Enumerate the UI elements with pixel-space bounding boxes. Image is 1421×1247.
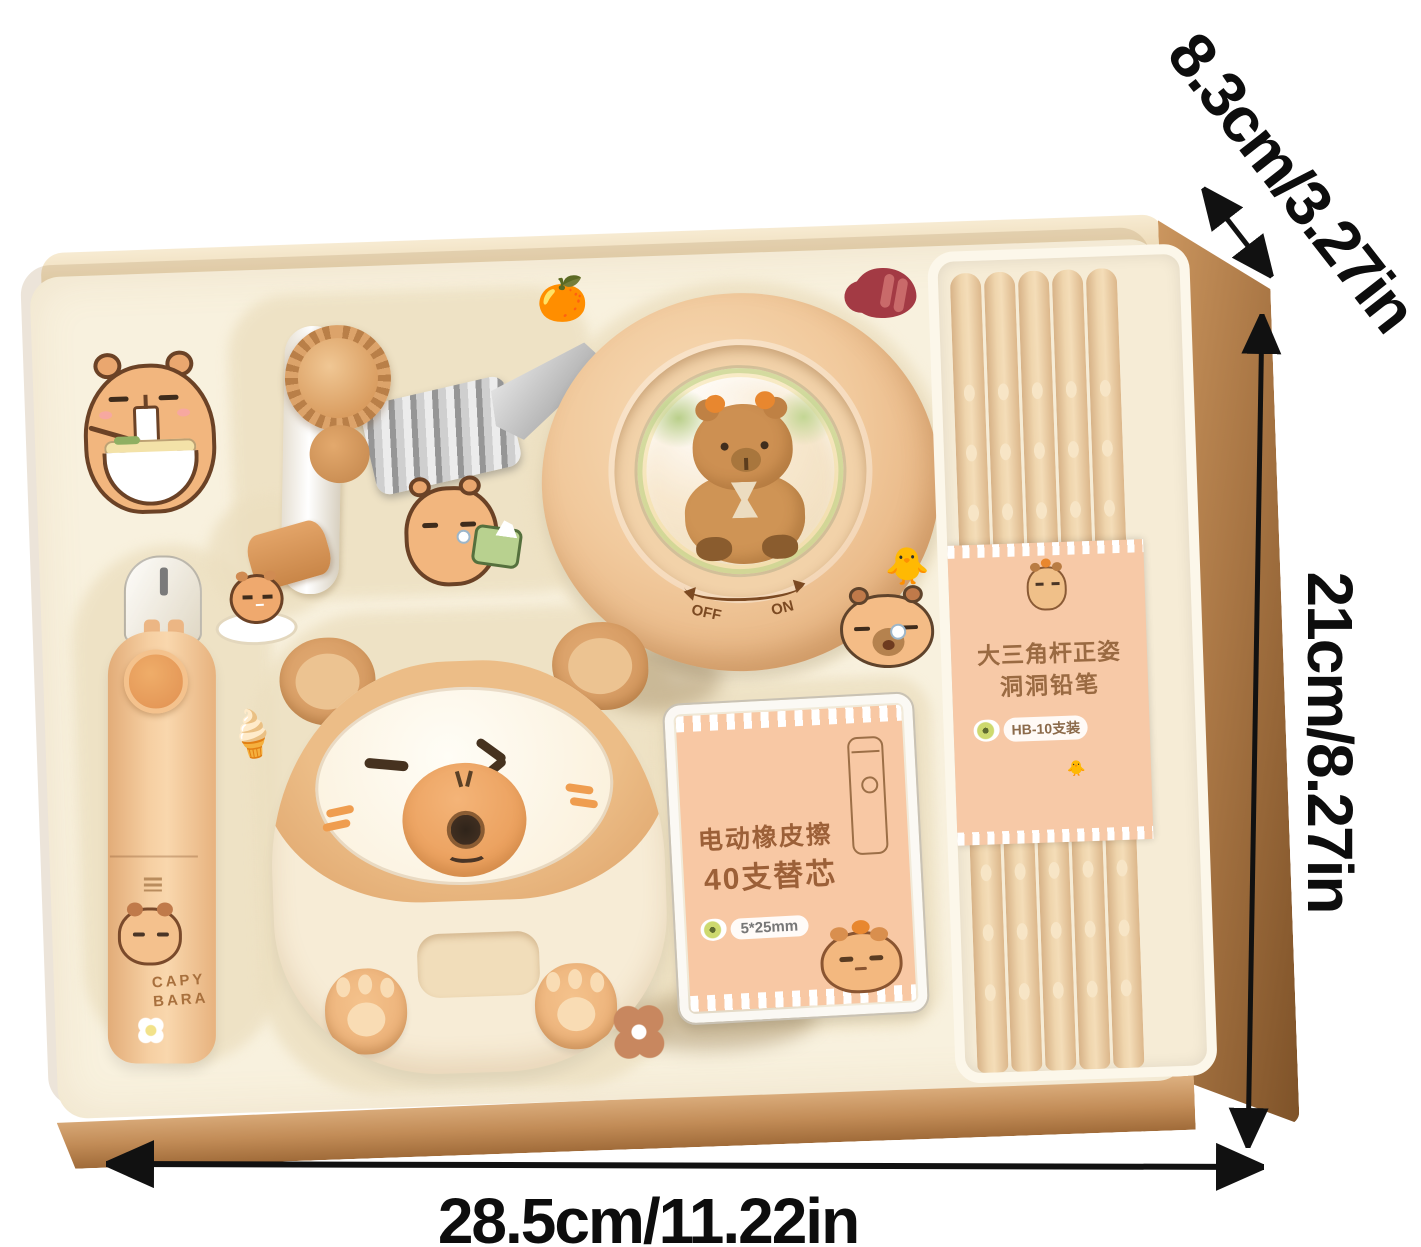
width-dimension-label: 28.5cm/11.22in bbox=[438, 1184, 858, 1247]
height-arrow bbox=[1248, 314, 1262, 1148]
width-arrow bbox=[106, 1164, 1264, 1167]
height-dimension-label: 21cm/8.27in bbox=[1293, 572, 1367, 913]
dimension-arrows bbox=[0, 0, 1421, 1247]
product-photo-stage: OFF ON bbox=[0, 0, 1421, 1247]
